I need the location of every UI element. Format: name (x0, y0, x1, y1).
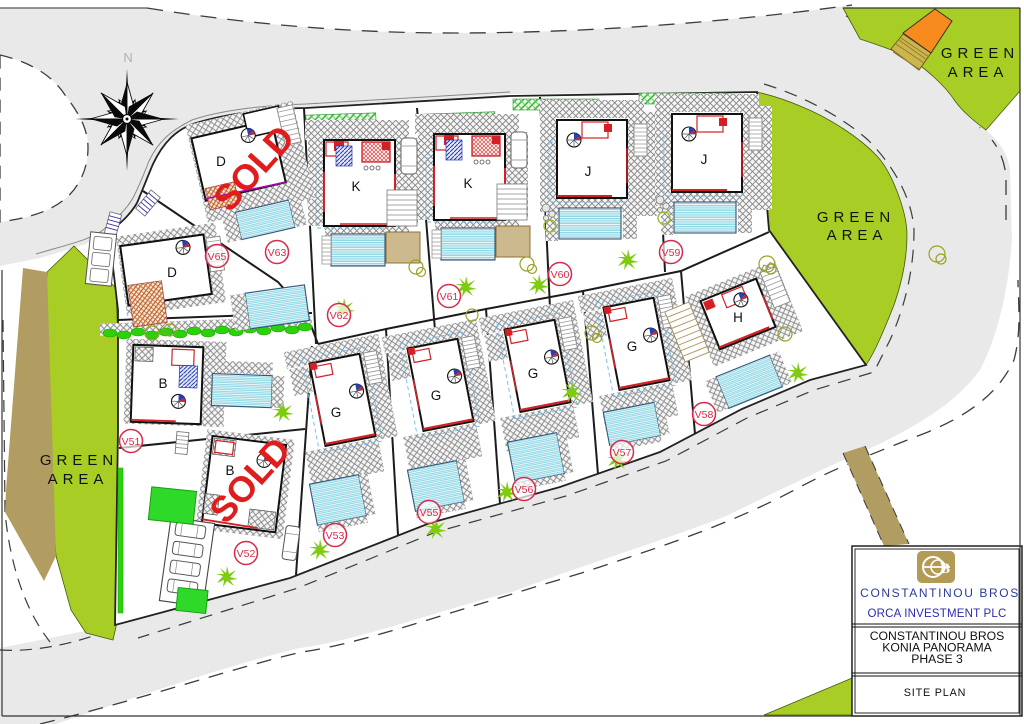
svg-text:V62: V62 (330, 310, 349, 322)
svg-text:V55: V55 (420, 507, 439, 519)
svg-text:CONSTANTINOU BROS: CONSTANTINOU BROS (860, 586, 1020, 600)
svg-text:B: B (158, 376, 167, 391)
svg-text:V57: V57 (613, 447, 632, 459)
svg-text:V53: V53 (326, 530, 345, 542)
svg-text:G: G (331, 405, 342, 420)
svg-text:V60: V60 (551, 269, 570, 281)
svg-text:SITE PLAN: SITE PLAN (904, 687, 966, 699)
svg-text:B: B (940, 561, 950, 577)
svg-text:V65: V65 (208, 251, 227, 263)
svg-text:ORCA INVESTMENT PLC: ORCA INVESTMENT PLC (867, 608, 1006, 620)
svg-text:AREA: AREA (827, 227, 888, 244)
svg-text:GREEN: GREEN (40, 452, 118, 469)
svg-text:K: K (351, 179, 360, 194)
svg-text:J: J (585, 164, 592, 179)
svg-text:V51: V51 (122, 436, 141, 448)
svg-text:N: N (123, 50, 132, 65)
svg-text:H: H (733, 310, 743, 325)
svg-text:V56: V56 (515, 484, 534, 496)
svg-text:V63: V63 (268, 247, 287, 259)
svg-text:D: D (216, 154, 226, 169)
svg-text:GREEN: GREEN (817, 209, 895, 226)
svg-text:V61: V61 (440, 291, 459, 303)
svg-text:G: G (528, 366, 539, 381)
svg-text:D: D (167, 265, 177, 280)
svg-text:J: J (701, 152, 708, 167)
svg-text:V52: V52 (237, 548, 256, 560)
svg-text:AREA: AREA (948, 64, 1009, 81)
svg-text:AREA: AREA (48, 471, 109, 488)
svg-text:G: G (431, 388, 442, 403)
svg-text:V58: V58 (695, 409, 714, 421)
svg-text:GREEN: GREEN (941, 45, 1019, 62)
svg-text:K: K (463, 176, 472, 191)
svg-text:PHASE 3: PHASE 3 (911, 652, 963, 666)
svg-text:V59: V59 (662, 247, 681, 259)
svg-text:G: G (627, 339, 638, 354)
